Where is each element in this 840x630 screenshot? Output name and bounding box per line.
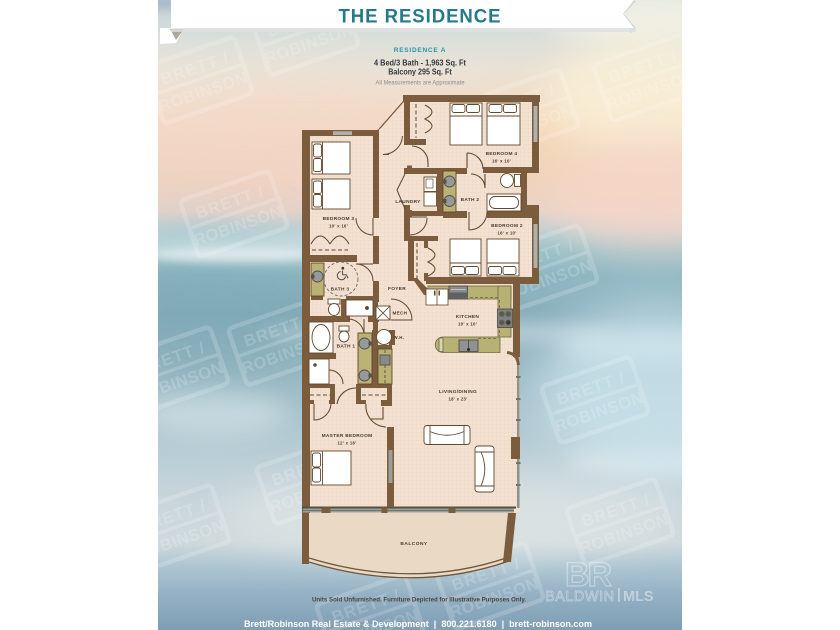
svg-text:FOYER: FOYER: [388, 286, 406, 292]
svg-text:12' x 16': 12' x 16': [337, 441, 356, 446]
svg-text:18' x 23': 18' x 23': [448, 397, 467, 402]
svg-text:BALCONY: BALCONY: [400, 541, 428, 547]
svg-text:Brett/Robinson Real Estate & D: Brett/Robinson Real Estate & Development…: [244, 619, 592, 629]
svg-text:10' x 16': 10' x 16': [329, 224, 348, 229]
svg-text:BEDROOM 2: BEDROOM 2: [491, 223, 523, 229]
svg-text:MLS: MLS: [623, 589, 654, 605]
svg-text:Units Sold Unfurnished. Furnit: Units Sold Unfurnished. Furniture Depict…: [312, 597, 526, 604]
svg-text:16' x 10': 16' x 10': [497, 231, 516, 236]
svg-text:W.H.: W.H.: [394, 335, 405, 340]
svg-text:MECH: MECH: [393, 311, 408, 316]
svg-text:BEDROOM 4: BEDROOM 4: [486, 151, 518, 157]
svg-text:BATH 3: BATH 3: [331, 287, 350, 293]
svg-text:10' x 10': 10' x 10': [458, 322, 477, 327]
svg-text:16' x 10': 16' x 10': [492, 159, 511, 164]
svg-text:MASTER BEDROOM: MASTER BEDROOM: [322, 433, 373, 439]
svg-text:LAUNDRY: LAUNDRY: [395, 199, 421, 205]
svg-text:KITCHEN: KITCHEN: [456, 314, 480, 320]
svg-text:BATH 2: BATH 2: [461, 197, 480, 203]
svg-text:LIVING/DINING: LIVING/DINING: [439, 389, 477, 395]
svg-text:BATH 1: BATH 1: [337, 344, 356, 350]
svg-text:BALDWIN: BALDWIN: [545, 589, 615, 605]
svg-text:BEDROOM 3: BEDROOM 3: [323, 216, 355, 222]
